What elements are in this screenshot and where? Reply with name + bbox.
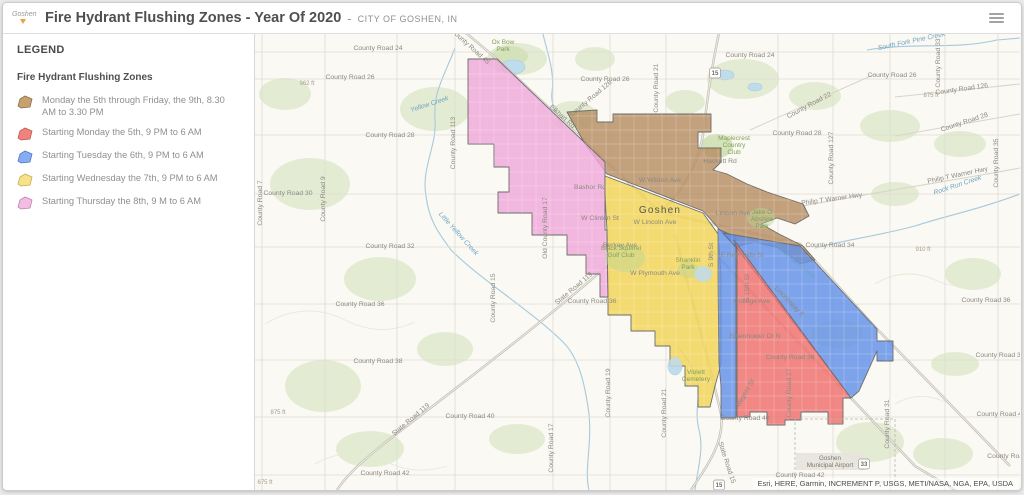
route-shield-15: 15	[714, 480, 725, 490]
title-separator: -	[347, 11, 351, 26]
map-label: Hackett Rd	[703, 158, 737, 165]
zone-swatch-icon	[17, 150, 34, 164]
map-label: Eisenhower Dr N	[729, 333, 780, 340]
legend-item-label: Monday the 5th through Friday, the 9th, …	[42, 95, 240, 118]
zone-swatch-icon	[17, 95, 34, 109]
legend-layer-title: Fire Hydrant Flushing Zones	[17, 72, 240, 83]
vegetation-area	[344, 257, 416, 301]
route-shield-15: 15	[710, 68, 721, 78]
map-label: County Road 15	[490, 273, 497, 322]
map-label: County Road 33	[935, 38, 942, 87]
map-label: County Road 38	[975, 352, 1020, 359]
map-label: County Road 21	[661, 388, 668, 437]
legend-item-label: Starting Thursday the 8th, 9 M to 6 AM	[42, 196, 201, 208]
route-shield-33: 33	[859, 459, 870, 469]
app-header: Goshen Fire Hydrant Flushing Zones - Yea…	[3, 3, 1021, 34]
hamburger-icon	[989, 21, 1004, 23]
map-label: County Road 17	[548, 423, 555, 472]
zone-swatch-icon	[17, 127, 34, 141]
map-label: County Road 24	[353, 45, 402, 52]
map-label: County Road	[987, 453, 1020, 460]
map-label: County Road 27	[786, 368, 793, 417]
map-label: County Road 40	[976, 411, 1020, 418]
map-label: E Reynolds St	[720, 252, 763, 259]
legend-item-label: Starting Monday the 5th, 9 PM to 6 AM	[42, 127, 202, 139]
map-label: Old County Road 17	[542, 197, 549, 259]
map-label: County Road 7	[257, 180, 264, 226]
map-label: 910 ft	[915, 247, 930, 253]
map-label: W Plymouth Ave	[630, 270, 680, 277]
map-label: County Road 38	[765, 354, 814, 361]
vegetation-area	[417, 332, 473, 366]
map-label: County Road 34	[805, 242, 854, 249]
map-label: County Road 24	[725, 52, 774, 59]
maple-leaf-icon	[20, 19, 26, 24]
map-label: County Road 26	[867, 72, 916, 79]
map-label: County Road 35	[993, 138, 1000, 187]
map-label: S 15th St	[744, 274, 751, 302]
legend-item: Starting Wednesday the 7th, 9 PM to 6 AM	[17, 173, 240, 187]
map-label: 962 ft	[299, 81, 314, 87]
zone-swatch-icon	[17, 196, 34, 210]
page-title: Fire Hydrant Flushing Zones - Year Of 20…	[45, 10, 341, 26]
vegetation-area	[931, 352, 979, 376]
map-label: Bashor Rd	[574, 184, 606, 191]
svg-text:15: 15	[712, 71, 719, 77]
map-label: County Road 28	[772, 130, 821, 137]
app-window: Goshen Fire Hydrant Flushing Zones - Yea…	[2, 2, 1022, 491]
legend-items-list: Monday the 5th through Friday, the 9th, …	[17, 95, 240, 210]
map-canvas[interactable]: County Road 24County Road 24County Road …	[255, 34, 1020, 490]
map-label: County Road 40	[445, 413, 494, 420]
map-label: County Road 113	[450, 117, 457, 170]
map-label: 875 ft	[270, 410, 285, 416]
goshen-logo: Goshen	[11, 9, 37, 27]
map-label: County Road 38	[353, 358, 402, 365]
map-label: College Ave	[734, 298, 770, 305]
map-label: County Road 36	[961, 297, 1010, 304]
map-label: County Road 31	[884, 399, 891, 448]
map-label: County Road 21	[653, 63, 660, 112]
goshen-logo-text: Goshen	[12, 11, 37, 18]
map-label: County Road 30	[263, 190, 312, 197]
svg-text:15: 15	[716, 483, 723, 489]
map-label: S 9th St	[708, 243, 715, 267]
vegetation-area	[945, 258, 1001, 290]
vegetation-area	[270, 158, 350, 210]
map-label: County Road 9	[320, 176, 327, 222]
legend-item: Monday the 5th through Friday, the 9th, …	[17, 95, 240, 118]
map-label: W Lincoln Ave	[634, 219, 677, 226]
map-label: County Road 26	[325, 74, 374, 81]
map-attribution: Esri, HERE, Garmin, INCREMENT P, USGS, M…	[753, 478, 1018, 489]
map-label: County Road 32	[365, 243, 414, 250]
pond	[694, 266, 712, 282]
legend-item: Starting Tuesday the 6th, 9 PM to 6 AM	[17, 150, 240, 164]
content-area: LEGEND Fire Hydrant Flushing Zones Monda…	[3, 34, 1021, 490]
map-label: Goshen	[639, 205, 681, 216]
hamburger-menu-button[interactable]	[986, 8, 1007, 28]
legend-panel: LEGEND Fire Hydrant Flushing Zones Monda…	[3, 34, 255, 490]
map-label: County Road 127	[828, 131, 835, 184]
hamburger-icon	[989, 17, 1004, 19]
map-label: Lincoln Ave	[716, 210, 751, 217]
legend-item: Starting Monday the 5th, 9 PM to 6 AM	[17, 127, 240, 141]
pond	[668, 357, 682, 375]
map-label: 875 ft	[923, 93, 938, 99]
vegetation-area	[285, 360, 361, 412]
map-label: County Road 19	[605, 368, 612, 417]
legend-item: Starting Thursday the 8th, 9 M to 6 AM	[17, 196, 240, 210]
legend-item-label: Starting Tuesday the 6th, 9 PM to 6 AM	[42, 150, 204, 162]
organization-label: CITY OF GOSHEN, IN	[358, 12, 458, 24]
legend-panel-title: LEGEND	[17, 44, 240, 56]
map-label: County Road 40	[720, 415, 769, 422]
svg-text:33: 33	[861, 462, 868, 468]
vegetation-area	[665, 90, 705, 114]
map-label: County Road 36	[567, 298, 616, 305]
vegetation-area	[575, 47, 615, 71]
map-label: W Clinton St	[581, 215, 619, 222]
map-label: County Road 42	[360, 470, 409, 477]
vegetation-area	[489, 424, 545, 454]
map-label: County Road 28	[365, 132, 414, 139]
legend-item-label: Starting Wednesday the 7th, 9 PM to 6 AM	[42, 173, 218, 185]
map-container[interactable]: County Road 24County Road 24County Road …	[255, 34, 1021, 490]
zone-swatch-icon	[17, 173, 34, 187]
hamburger-icon	[989, 13, 1004, 15]
map-label: W Wilden Ave	[639, 177, 681, 184]
map-label: 675 ft	[257, 480, 272, 486]
vegetation-area	[913, 438, 973, 470]
pond	[748, 83, 762, 91]
map-label: County Road 36	[335, 301, 384, 308]
